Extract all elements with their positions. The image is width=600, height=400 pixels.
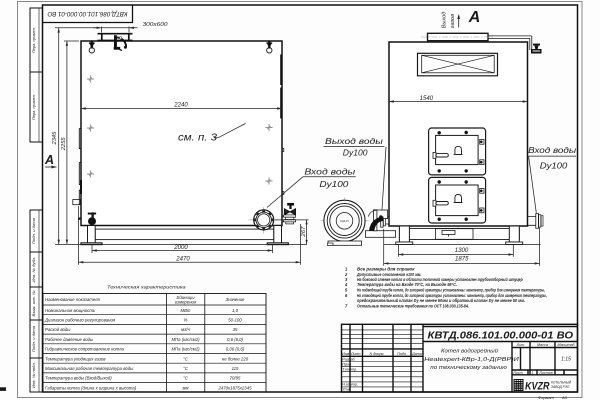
svg-text:Все размеры для справок: Все размеры для справок [357, 267, 415, 272]
svg-text:Перв. примен.: Перв. примен. [32, 94, 36, 120]
svg-text:1540: 1540 [420, 96, 434, 102]
svg-text:267: 267 [301, 225, 307, 237]
svg-text:N докум.: N докум. [370, 352, 385, 356]
svg-text:Выход воды: Выход воды [325, 136, 384, 146]
svg-text:Гидравлическое сопротивление к: Гидравлическое сопротивление котла [45, 347, 125, 352]
svg-text:Изм.: Изм. [342, 352, 350, 356]
svg-text:МПа (кгс/см2): МПа (кгс/см2) [171, 347, 200, 352]
svg-text:Dy100: Dy100 [343, 147, 368, 157]
svg-text:Остальные технические требован: Остальные технические требования по ОСТ … [357, 304, 469, 309]
svg-text:по техническому заданию: по техническому заданию [430, 365, 507, 371]
svg-text:А3: А3 [561, 395, 568, 400]
svg-text:Лист: Лист [350, 352, 361, 356]
svg-text:МВт: МВт [180, 308, 190, 313]
svg-text:1:15: 1:15 [561, 357, 571, 363]
svg-text:115: 115 [232, 366, 239, 371]
svg-text:Выход: Выход [442, 12, 448, 29]
svg-text:КЦ3,15: КЦ3,15 [340, 219, 349, 223]
svg-text:измерения: измерения [175, 300, 197, 305]
svg-text:Вход воды: Вход воды [304, 166, 356, 176]
svg-text:Лист: Лист [512, 371, 523, 375]
svg-text:Листов: Листов [538, 371, 553, 375]
svg-text:0,6 (6,0): 0,6 (6,0) [227, 337, 244, 342]
svg-text:Подп. и дата: Подп. и дата [32, 218, 36, 244]
svg-text:Габариты котла (длина х ширина: Габариты котла (длина х ширина х высота) [45, 385, 137, 390]
svg-text:Инв. № подл.: Инв. № подл. [32, 362, 36, 388]
svg-text:Котел водогрейный: Котел водогрейный [441, 348, 498, 355]
svg-text:не более 220: не более 220 [222, 356, 249, 361]
svg-text:Расход воды: Расход воды [45, 327, 71, 332]
svg-text:А: А [468, 9, 481, 26]
svg-text:50-100: 50-100 [228, 318, 242, 323]
svg-text:1875: 1875 [455, 256, 469, 262]
svg-text:2255: 2255 [61, 137, 67, 152]
svg-text:70/95: 70/95 [230, 376, 241, 381]
svg-text:ЗАВОД РЭП: ЗАВОД РЭП [551, 385, 570, 389]
svg-text:Значение: Значение [226, 297, 245, 302]
svg-text:м3/ч: м3/ч [181, 327, 191, 332]
svg-text:Масса: Масса [537, 343, 548, 347]
svg-text:Техническая характеристика: Техническая характеристика [107, 284, 186, 289]
svg-text:Подп.: Подп. [397, 352, 407, 356]
svg-text:Температура уходящих газов: Температура уходящих газов [45, 356, 106, 361]
svg-text:Температура воды на Входе 70°: Температура воды на Входе 70°С, на Выход… [357, 282, 457, 287]
svg-text:Номинальная мощность: Номинальная мощность [45, 308, 96, 313]
svg-text:Лит.: Лит. [516, 343, 526, 347]
svg-text:КВТД.086.101.00.000-01 ВО: КВТД.086.101.00.000-01 ВО [48, 10, 128, 17]
svg-text:см. п. 3: см. п. 3 [178, 132, 217, 144]
svg-text:2345: 2345 [52, 131, 58, 146]
svg-text:Взам. инв. №: Взам. инв. № [32, 290, 36, 316]
svg-text:2: 2 [562, 371, 565, 375]
svg-text:2470х1875х2345: 2470х1875х2345 [218, 385, 253, 390]
svg-text:2000: 2000 [173, 245, 188, 251]
svg-text:предохранительный клапан Dу н: предохранительный клапан Dу не менее 50м… [357, 298, 525, 303]
svg-text:газов: газов [450, 14, 456, 29]
svg-text:KVZR: KVZR [525, 381, 550, 393]
svg-text:Максимальная рабочая температу: Максимальная рабочая температура воды [45, 366, 134, 371]
svg-text:Дата: Дата [411, 352, 422, 356]
svg-text:Температура воды (Вход/Выход): Температура воды (Вход/Выход) [45, 376, 112, 381]
svg-text:2240: 2240 [173, 102, 188, 108]
svg-text:Формат: Формат [538, 395, 555, 400]
svg-text:Пров.: Пров. [342, 362, 352, 366]
svg-text:На подводящей трубе котла, до: На подводящей трубе котла, до запорной а… [357, 288, 545, 293]
svg-text:Т.контр.: Т.контр. [342, 368, 357, 372]
svg-text:1300: 1300 [455, 248, 469, 254]
svg-text:Утв.: Утв. [342, 388, 350, 392]
svg-text:%: % [184, 318, 188, 323]
svg-text:мм: мм [183, 385, 189, 390]
svg-text:Н.контр.: Н.контр. [342, 383, 358, 387]
svg-text:Dy100: Dy100 [540, 160, 568, 170]
svg-text:Масштаб: Масштаб [557, 343, 575, 347]
svg-text:35: 35 [233, 327, 238, 332]
svg-text:Перв. примен.: Перв. примен. [32, 27, 36, 53]
svg-text:Heatexpert-КВр-1,0-Д(РВР)И: Heatexpert-КВр-1,0-Д(РВР)И [424, 357, 519, 363]
svg-text:0,06 (0,6): 0,06 (0,6) [226, 347, 245, 352]
svg-text:Dy100: Dy100 [319, 179, 348, 189]
svg-text:1,0: 1,0 [232, 308, 239, 313]
svg-text:Вход воды: Вход воды [528, 145, 577, 155]
svg-text:2470: 2470 [175, 257, 190, 263]
svg-text:КВТД.086.101.00.000-01 ВО: КВТД.086.101.00.000-01 ВО [428, 330, 574, 341]
svg-text:Подп. и дата: Подп. и дата [32, 326, 36, 352]
svg-text:Наименование показателя: Наименование показателя [45, 297, 101, 302]
svg-text:Диапазон рабочего регулировани: Диапазон рабочего регулирования [44, 318, 116, 323]
svg-text:Рабочее давление воды: Рабочее давление воды [45, 337, 94, 342]
svg-text:Разраб.: Разраб. [342, 357, 355, 361]
svg-text:Инв. № дубл.: Инв. № дубл. [32, 257, 36, 283]
svg-text:А: А [44, 153, 54, 167]
svg-text:МПа (кгс/см2): МПа (кгс/см2) [171, 337, 200, 342]
svg-text:1: 1 [531, 371, 533, 375]
svg-text:300х600: 300х600 [143, 22, 169, 28]
